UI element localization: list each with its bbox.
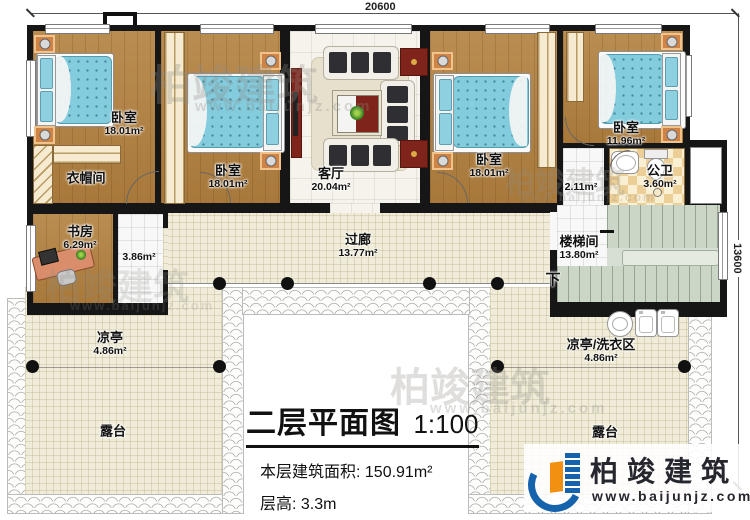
terrace-left-floor xyxy=(25,287,222,494)
pillow xyxy=(40,91,53,122)
top-dimension-value: 20600 xyxy=(362,1,399,13)
room-label-study: 书房 6.29m² xyxy=(63,225,96,251)
washing-machine-icon xyxy=(635,309,657,337)
terrace-left-border-right xyxy=(222,287,244,514)
sofa-top xyxy=(323,46,399,80)
side-table xyxy=(400,140,428,168)
column xyxy=(423,277,436,290)
pillow xyxy=(439,79,452,111)
room-label-terrace-left: 露台 xyxy=(100,425,126,440)
room-label-stairwell: 楼梯间 13.80m² xyxy=(559,235,598,261)
nightstand xyxy=(34,35,55,53)
cloak-wardrobe xyxy=(53,145,121,164)
room-label-pavilion-right: 凉亭/洗衣区 4.86m² xyxy=(567,338,636,364)
floor-height-line: 层高: 3.3m xyxy=(260,490,479,514)
sofa-cushion xyxy=(351,145,369,166)
stairs-upper-flight xyxy=(607,205,720,248)
room-label-cloak: 衣帽间 xyxy=(66,172,105,187)
sofa-cushion xyxy=(329,145,347,166)
pillow xyxy=(439,113,452,145)
stairs-landing-platform xyxy=(622,250,719,266)
stairwell-door-opening xyxy=(550,212,557,250)
room-label-bedroom4: 卧室 11.96m² xyxy=(607,121,646,147)
laundry-sink-basin xyxy=(612,317,628,331)
stairs-direction-arrow xyxy=(600,230,614,233)
title-block: 二层平面图 1:100 本层建筑面积: 150.91m² 层高: 3.3m xyxy=(246,398,479,514)
sofa-cushion xyxy=(329,52,347,73)
washer-knob xyxy=(639,311,643,314)
room-label-pavilion-left: 凉亭 4.86m² xyxy=(93,331,126,357)
sofa-cushion xyxy=(373,145,391,166)
brand-logo: 柏竣建筑 www.baijunjz.com xyxy=(524,444,746,512)
pillow xyxy=(665,90,678,120)
column xyxy=(213,360,226,373)
passage-corridor-opening xyxy=(163,228,168,270)
right-dimension-value: 13600 xyxy=(731,240,743,277)
room-label-living: 客厅 20.04m² xyxy=(311,167,350,193)
bedroom2-window xyxy=(200,24,274,34)
washer-knob xyxy=(661,311,665,314)
bed-blanket xyxy=(509,76,527,146)
wardrobe xyxy=(566,32,584,102)
washing-machine-icon xyxy=(657,309,679,337)
column xyxy=(26,360,39,373)
room-label-corridor: 过廊 13.77m² xyxy=(338,233,377,259)
laundry-sink-icon xyxy=(607,311,633,337)
living-window xyxy=(315,24,412,34)
pillow xyxy=(665,57,678,87)
terrace-left-border-left xyxy=(7,298,27,514)
nightstand xyxy=(432,52,453,70)
logo-building-blue xyxy=(565,453,580,493)
room-label-bath: 公卫 3.60m² xyxy=(643,164,676,190)
pillow xyxy=(40,58,53,89)
side-table xyxy=(400,48,428,76)
stairwell-window xyxy=(718,212,728,280)
room-label-terrace-right: 露台 xyxy=(592,426,618,441)
room-label-bedroom3: 卧室 18.01m² xyxy=(469,153,508,179)
bath-window-bay xyxy=(690,147,722,204)
nightstand xyxy=(432,152,453,170)
stairs-down-label: 下 xyxy=(545,273,560,290)
room-label-passage: 3.86m² xyxy=(122,252,155,264)
page-title: 二层平面图 xyxy=(246,407,401,440)
sofa-cushion xyxy=(373,52,391,73)
column xyxy=(281,277,294,290)
pillow xyxy=(266,113,279,145)
sofa-cushion xyxy=(387,86,408,103)
pavilion-divider-left xyxy=(33,367,220,368)
washer-lid xyxy=(661,316,675,333)
drawing-scale: 1:100 xyxy=(413,409,478,439)
sofa-right xyxy=(380,80,415,146)
bedroom4-window xyxy=(595,24,662,34)
nightstand xyxy=(34,126,55,144)
terrace-left-border-bottom xyxy=(7,494,244,514)
wardrobe xyxy=(164,32,185,204)
pillow xyxy=(266,79,279,111)
nightstand xyxy=(661,126,682,143)
cloak-wardrobe-side xyxy=(33,145,53,204)
washer-lid xyxy=(639,316,653,333)
wardrobe xyxy=(537,32,556,168)
room-label-bedroom2: 卧室 18.01m² xyxy=(208,164,247,190)
bedroom1-window xyxy=(45,24,110,34)
tv xyxy=(293,92,298,136)
stairs-lower-flight xyxy=(557,266,720,302)
coffee-table xyxy=(332,90,382,136)
logo-building-orange xyxy=(550,461,563,493)
sofa-cushion xyxy=(387,106,408,123)
column xyxy=(678,360,691,373)
logo-brand-text: 柏竣建筑 xyxy=(590,450,738,490)
room-label-hall: 2.11m² xyxy=(565,182,598,194)
courtyard-border-top xyxy=(242,287,470,315)
pavilion-divider-right xyxy=(498,367,685,368)
sofa-cushion xyxy=(351,52,369,73)
floor-area-line: 本层建筑面积: 150.91m² xyxy=(260,458,479,482)
column xyxy=(491,360,504,373)
column xyxy=(213,277,226,290)
nightstand xyxy=(661,33,682,50)
plant-icon xyxy=(350,106,364,120)
column xyxy=(491,277,504,290)
room-label-bedroom1: 卧室 18.01m² xyxy=(104,111,143,137)
living-corridor-opening xyxy=(330,203,380,213)
nightstand xyxy=(260,152,281,170)
nightstand xyxy=(260,52,281,70)
room-hall-floor xyxy=(563,148,604,205)
logo-url-text: www.baijunjz.com xyxy=(592,488,750,504)
floor-plan: 20600 13600 xyxy=(0,0,750,520)
